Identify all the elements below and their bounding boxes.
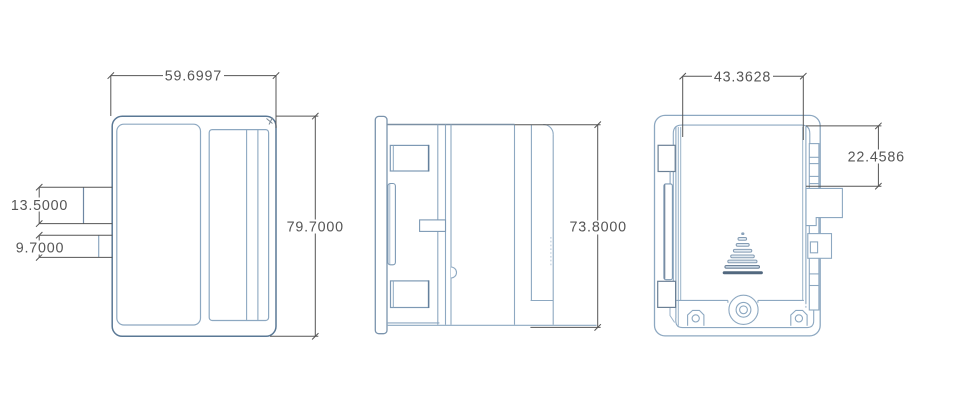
svg-text:22.4586: 22.4586: [848, 150, 905, 166]
svg-text:73.8000: 73.8000: [570, 220, 627, 236]
svg-text:43.3628: 43.3628: [714, 70, 771, 86]
svg-text:9.7000: 9.7000: [16, 241, 65, 257]
svg-text:13.5000: 13.5000: [11, 198, 68, 214]
svg-text:59.6997: 59.6997: [165, 69, 222, 85]
svg-text:79.7000: 79.7000: [287, 220, 344, 236]
